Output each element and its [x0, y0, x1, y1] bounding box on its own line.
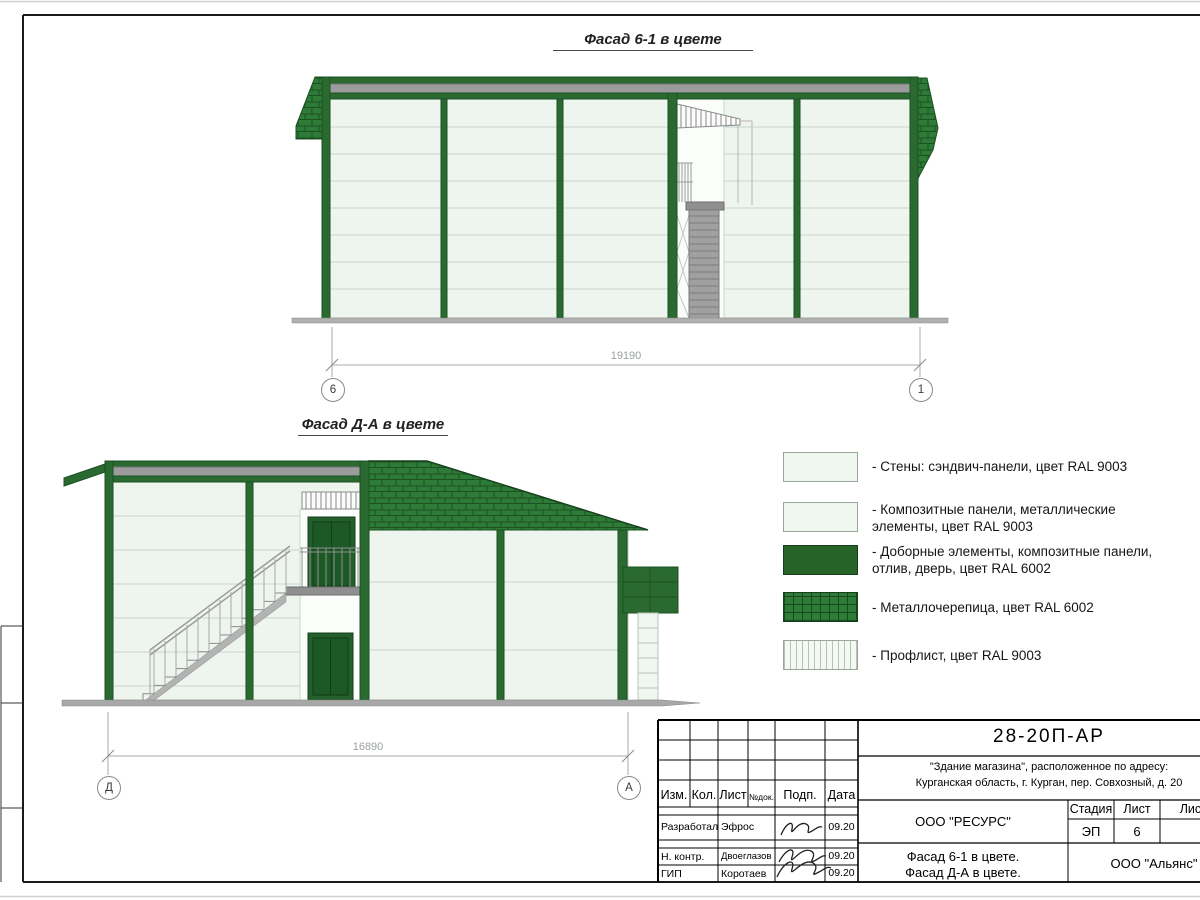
signature-marks: [777, 823, 831, 877]
legend-swatch-composite: [783, 502, 858, 532]
stage-value: ЭП: [1068, 824, 1114, 839]
legend-label-trim: - Доборные элементы, композитные панели,…: [872, 543, 1182, 577]
row-gip-date: 09.20: [825, 867, 858, 879]
row-gip-role: ГИП: [661, 868, 717, 880]
dimension-value-f2: 16890: [318, 741, 418, 753]
axis-bubble-a: А: [617, 776, 641, 800]
col-kol: Кол.: [690, 788, 718, 802]
drawing-sheet: Фасад 6-1 в цвете Фасад Д-А в цвете стро…: [0, 0, 1200, 900]
doc-number: 28-20П-АР: [858, 726, 1200, 748]
row-ncontrol-role: Н. контр.: [661, 851, 717, 863]
sheet-frame: [1, 15, 1200, 882]
col-list: Лист: [718, 788, 748, 802]
col-podp: Подп.: [775, 788, 825, 802]
col-izm: Изм.: [658, 788, 690, 802]
sheet-name-line2: Фасад Д-А в цвете.: [858, 865, 1068, 880]
col-ndok: №док.: [748, 792, 775, 802]
axis-bubble-d: Д: [97, 776, 121, 800]
row-developer-role: Разработал: [661, 821, 717, 833]
legend-swatch-walls: [783, 452, 858, 482]
row-gip-name: Коротаев: [721, 868, 774, 880]
roof-watermark: строительная: [545, 463, 675, 474]
project-address-line2: Курганская область, г. Курган, пер. Совх…: [858, 776, 1200, 791]
sheet-value: 6: [1114, 824, 1160, 839]
axis-bubble-6: 6: [321, 378, 345, 402]
row-developer-date: 09.20: [825, 821, 858, 833]
legend-label-walls: - Стены: сэндвич-панели, цвет RAL 9003: [872, 458, 1187, 475]
legend-swatch-metal-tile: [783, 592, 858, 622]
legend-label-metal-tile: - Металлочерепица, цвет RAL 6002: [872, 599, 1187, 616]
facade-6-1-graphic: [292, 77, 948, 323]
dimension-value-f1: 19190: [576, 350, 676, 362]
sheets-label: Листов: [1160, 802, 1200, 816]
sheet-name-line1: Фасад 6-1 в цвете.: [858, 849, 1068, 864]
facade-6-1-title: Фасад 6-1 в цвете: [553, 31, 753, 51]
legend-label-proflist: - Профлист, цвет RAL 9003: [872, 647, 1187, 664]
legend-swatch-proflist: [783, 640, 858, 670]
row-developer-name: Эфрос: [721, 821, 774, 833]
sheet-label: Лист: [1114, 802, 1160, 816]
row-ncontrol-name: Двоеглазов: [721, 851, 774, 862]
axis-bubble-1: 1: [909, 378, 933, 402]
designer-org: ООО "РЕСУРС": [858, 814, 1068, 829]
row-ncontrol-date: 09.20: [825, 850, 858, 862]
col-data: Дата: [825, 788, 858, 802]
project-address-line1: "Здание магазина", расположенное по адре…: [858, 760, 1200, 775]
facade-d-a-graphic: [62, 461, 700, 706]
stage-label: Стадия: [1068, 802, 1114, 816]
contractor-org: ООО "Альянс": [1068, 856, 1200, 871]
facade-d-a-title: Фасад Д-А в цвете: [298, 416, 448, 436]
legend-swatch-trim: [783, 545, 858, 575]
legend-label-composite: - Композитные панели, металлические элем…: [872, 501, 1182, 535]
